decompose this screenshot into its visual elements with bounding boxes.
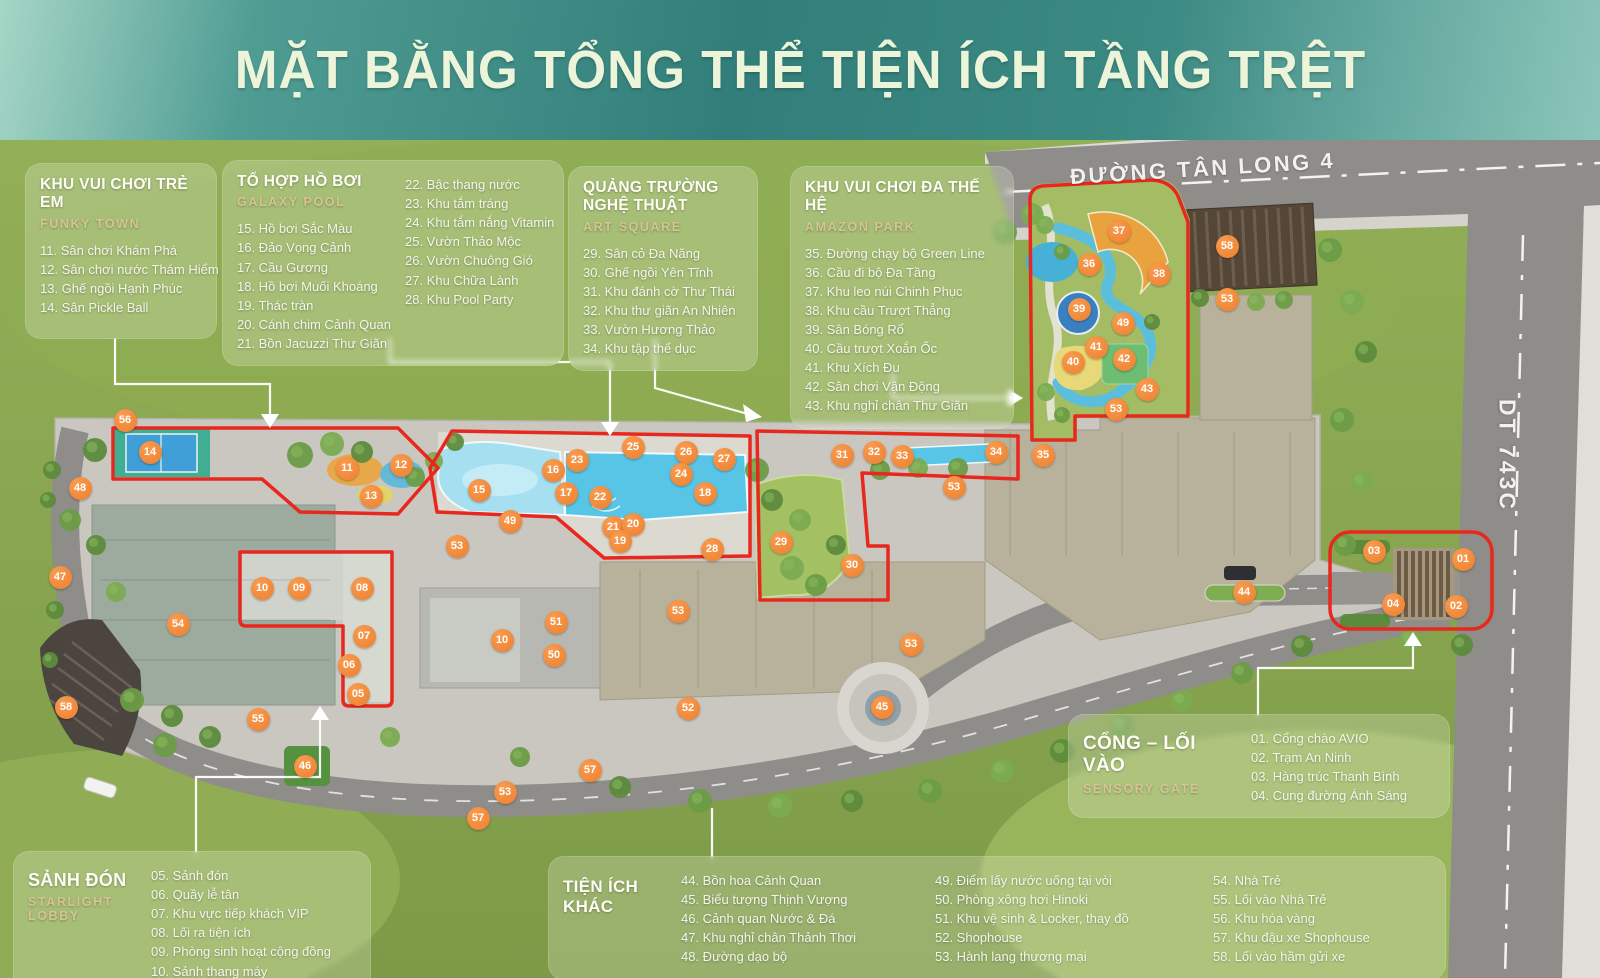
map-marker-28: 28 [701, 538, 724, 561]
legend-amazon-park: KHU VUI CHƠI ĐA THẾ HỆ AMAZON PARK 35. Đ… [790, 166, 1014, 429]
legend-item: 03. Hàng trúc Thanh Bình [1251, 767, 1407, 786]
map-marker-09: 09 [288, 577, 311, 600]
legend-item: 17. Cầu Gương [237, 258, 389, 277]
legend-item: 19. Thác tràn [237, 296, 389, 315]
legend-item: 25. Vườn Thảo Mộc [405, 232, 554, 251]
legend-item: 55. Lối vào Nhà Trẻ [1213, 890, 1403, 909]
map-marker-42: 42 [1113, 348, 1136, 371]
map-marker-50: 50 [543, 644, 566, 667]
legend-item: 15. Hồ bơi Sắc Màu [237, 219, 389, 238]
map-marker-19: 19 [609, 530, 632, 553]
map-marker-13: 13 [360, 485, 383, 508]
legend-art-square: QUẢNG TRƯỜNG NGHỆ THUẬT ART SQUARE 29. S… [568, 166, 758, 371]
legend-item: 35. Đường chạy bộ Green Line [805, 244, 999, 263]
map-marker-36: 36 [1078, 253, 1101, 276]
map-marker-48: 48 [69, 477, 92, 500]
map-marker-12: 12 [390, 454, 413, 477]
legend-item: 41. Khu Xích Đu [805, 358, 999, 377]
map-marker-58: 58 [55, 696, 78, 719]
map-marker-38: 38 [1148, 263, 1171, 286]
legend-item: 58. Lối vào hầm gửi xe [1213, 947, 1403, 966]
map-marker-55: 55 [247, 708, 270, 731]
map-marker-11: 11 [336, 457, 359, 480]
map-marker-53: 53 [667, 600, 690, 623]
legend-item: 26. Vườn Chuông Gió [405, 251, 554, 270]
legend-sensory-gate: CỔNG – LỐI VÀO SENSORY GATE 01. Cổng chà… [1068, 714, 1450, 818]
legend-subtitle: ART SQUARE [583, 220, 743, 234]
legend-item: 20. Cánh chim Cảnh Quan [237, 315, 389, 334]
page-title: MẶT BẰNG TỔNG THỂ TIỆN ÍCH TẦNG TRỆT [234, 39, 1365, 101]
legend-item: 23. Khu tắm tráng [405, 194, 554, 213]
legend-title: TỔ HỢP HỒ BƠI [237, 173, 389, 191]
legend-item: 56. Khu hóa vàng [1213, 909, 1403, 928]
map-marker-14: 14 [139, 441, 162, 464]
legend-item: 33. Vườn Hương Thảo [583, 320, 743, 339]
legend-item: 29. Sân cỏ Đa Năng [583, 244, 743, 263]
map-marker-53: 53 [446, 535, 469, 558]
legend-item: 05. Sảnh đón [151, 866, 331, 885]
legend-item: 10. Sảnh thang máy [151, 962, 331, 978]
legend-item: 49. Điểm lấy nước uống tại vòi [935, 871, 1187, 890]
map-marker-32: 32 [863, 441, 886, 464]
legend-item: 01. Cổng chào AVIO [1251, 729, 1407, 748]
legend-list: 05. Sảnh đón06. Quầy lễ tân07. Khu vực t… [151, 866, 331, 978]
legend-item: 06. Quầy lễ tân [151, 885, 331, 904]
legend-list: 29. Sân cỏ Đa Năng30. Ghế ngồi Yên Tĩnh3… [583, 244, 743, 359]
legend-item: 13. Ghế ngồi Hạnh Phúc [40, 279, 202, 298]
map-marker-15: 15 [468, 479, 491, 502]
map-marker-23: 23 [566, 449, 589, 472]
map-marker-16: 16 [542, 459, 565, 482]
legend-list: 01. Cổng chào AVIO02. Trạm An Ninh03. Hà… [1251, 729, 1407, 805]
map-marker-58: 58 [1216, 235, 1239, 258]
map-marker-10: 10 [491, 629, 514, 652]
legend-item: 27. Khu Chữa Lành [405, 271, 554, 290]
legend-item: 34. Khu tập thể dục [583, 339, 743, 358]
map-marker-53: 53 [1105, 398, 1128, 421]
map-marker-57: 57 [467, 807, 490, 830]
map-marker-57: 57 [579, 759, 602, 782]
map-marker-47: 47 [49, 566, 72, 589]
page-header: MẶT BẰNG TỔNG THỂ TIỆN ÍCH TẦNG TRỆT [0, 0, 1600, 140]
map-marker-41: 41 [1085, 336, 1108, 359]
legend-title: TIỆN ÍCH KHÁC [563, 877, 655, 917]
legend-list: 49. Điểm lấy nước uống tại vòi50. Phòng … [935, 871, 1187, 967]
map-marker-49: 49 [1112, 312, 1135, 335]
legend-subtitle: FUNKY TOWN [40, 217, 202, 231]
map-marker-25: 25 [622, 436, 645, 459]
map-marker-37: 37 [1108, 220, 1131, 243]
legend-item: 14. Sân Pickle Ball [40, 298, 202, 317]
legend-item: 36. Cầu đi bộ Đa Tầng [805, 263, 999, 282]
map-marker-24: 24 [670, 463, 693, 486]
marker-layer: 5614484758545510090807060546111213154916… [0, 0, 1600, 978]
legend-item: 42. Sân chơi Vận Động [805, 377, 999, 396]
map-marker-26: 26 [675, 441, 698, 464]
legend-item: 09. Phòng sinh hoạt cộng đồng [151, 942, 331, 961]
legend-galaxy-pool: TỔ HỢP HỒ BƠI GALAXY POOL 15. Hồ bơi Sắc… [222, 160, 564, 366]
legend-item: 52. Shophouse [935, 928, 1187, 947]
legend-subtitle: STARLIGHT LOBBY [28, 895, 133, 923]
legend-item: 46. Cảnh quan Nước & Đá [681, 909, 909, 928]
legend-item: 11. Sân chơi Khám Phá [40, 241, 202, 260]
legend-item: 24. Khu tắm nắng Vitamin [405, 213, 554, 232]
map-marker-29: 29 [770, 531, 793, 554]
legend-title: QUẢNG TRƯỜNG NGHỆ THUẬT [583, 179, 743, 216]
legend-item: 16. Đảo Vọng Cảnh [237, 238, 389, 257]
map-marker-52: 52 [677, 697, 700, 720]
legend-item: 44. Bồn hoa Cảnh Quan [681, 871, 909, 890]
legend-item: 31. Khu đánh cờ Thư Thái [583, 282, 743, 301]
map-marker-10: 10 [251, 577, 274, 600]
map-marker-53: 53 [1216, 288, 1239, 311]
map-marker-03: 03 [1363, 540, 1386, 563]
legend-item: 53. Hành lang thương mại [935, 947, 1187, 966]
map-marker-22: 22 [589, 486, 612, 509]
legend-item: 37. Khu leo núi Chinh Phục [805, 282, 999, 301]
legend-item: 12. Sân chơi nước Thám Hiểm [40, 260, 202, 279]
legend-item: 21. Bồn Jacuzzi Thư Giãn [237, 334, 389, 353]
legend-funky-town: KHU VUI CHƠI TRẺ EM FUNKY TOWN 11. Sân c… [25, 163, 217, 339]
map-marker-49: 49 [499, 510, 522, 533]
map-marker-04: 04 [1382, 593, 1405, 616]
map-marker-35: 35 [1032, 444, 1055, 467]
legend-item: 07. Khu vực tiếp khách VIP [151, 904, 331, 923]
map-marker-01: 01 [1452, 548, 1475, 571]
legend-item: 40. Cầu trượt Xoắn Ốc [805, 339, 999, 358]
map-marker-56: 56 [114, 409, 137, 432]
legend-item: 18. Hồ bơi Muối Khoáng [237, 277, 389, 296]
map-marker-34: 34 [985, 441, 1008, 464]
legend-item: 38. Khu cầu Trượt Thẳng [805, 301, 999, 320]
legend-item: 45. Biểu tượng Thịnh Vượng [681, 890, 909, 909]
map-marker-54: 54 [167, 613, 190, 636]
site-plan-page: ĐƯỜNG TÂN LONG 4 DT 743C 561448475854551… [0, 0, 1600, 978]
legend-list: 15. Hồ bơi Sắc Màu16. Đảo Vọng Cảnh17. C… [237, 219, 389, 353]
legend-item: 50. Phòng xông hơi Hinoki [935, 890, 1187, 909]
map-marker-53: 53 [900, 633, 923, 656]
legend-item: 02. Trạm An Ninh [1251, 748, 1407, 767]
map-marker-53: 53 [494, 781, 517, 804]
legend-item: 51. Khu vệ sinh & Locker, thay đồ [935, 909, 1187, 928]
legend-item: 32. Khu thư giãn An Nhiên [583, 301, 743, 320]
legend-title: KHU VUI CHƠI TRẺ EM [40, 176, 202, 213]
legend-item: 04. Cung đường Ánh Sáng [1251, 786, 1407, 805]
map-marker-06: 06 [338, 654, 361, 677]
map-marker-43: 43 [1136, 378, 1159, 401]
map-marker-53: 53 [943, 476, 966, 499]
legend-other-amenities: TIỆN ÍCH KHÁC 44. Bồn hoa Cảnh Quan45. B… [548, 856, 1446, 978]
legend-list: 11. Sân chơi Khám Phá12. Sân chơi nước T… [40, 241, 202, 317]
legend-item: 48. Đường dạo bộ [681, 947, 909, 966]
legend-item: 08. Lối ra tiện ích [151, 923, 331, 942]
legend-item: 57. Khu đậu xe Shophouse [1213, 928, 1403, 947]
map-marker-45: 45 [871, 696, 894, 719]
map-marker-51: 51 [545, 611, 568, 634]
map-marker-33: 33 [891, 445, 914, 468]
legend-title: KHU VUI CHƠI ĐA THẾ HỆ [805, 179, 999, 216]
legend-item: 39. Sân Bóng Rổ [805, 320, 999, 339]
map-marker-31: 31 [831, 444, 854, 467]
map-marker-46: 46 [294, 755, 317, 778]
legend-list: 22. Bậc thang nước23. Khu tắm tráng24. K… [405, 175, 554, 309]
map-marker-17: 17 [555, 482, 578, 505]
map-marker-07: 07 [353, 625, 376, 648]
legend-title: SẢNH ĐÓN [28, 870, 133, 891]
map-marker-30: 30 [841, 554, 864, 577]
legend-item: 43. Khu nghỉ chân Thư Giãn [805, 396, 999, 415]
map-marker-27: 27 [713, 448, 736, 471]
map-marker-39: 39 [1068, 298, 1091, 321]
legend-item: 22. Bậc thang nước [405, 175, 554, 194]
map-marker-18: 18 [694, 482, 717, 505]
map-marker-02: 02 [1445, 595, 1468, 618]
legend-list: 35. Đường chạy bộ Green Line36. Cầu đi b… [805, 244, 999, 416]
legend-subtitle: AMAZON PARK [805, 220, 999, 234]
legend-list: 54. Nhà Trẻ55. Lối vào Nhà Trẻ56. Khu hó… [1213, 871, 1403, 967]
legend-starlight-lobby: SẢNH ĐÓN STARLIGHT LOBBY 05. Sảnh đón06.… [13, 851, 371, 978]
map-marker-44: 44 [1233, 581, 1256, 604]
legend-item: 47. Khu nghỉ chân Thảnh Thơi [681, 928, 909, 947]
legend-subtitle: SENSORY GATE [1083, 782, 1233, 796]
legend-item: 28. Khu Pool Party [405, 290, 554, 309]
legend-subtitle: GALAXY POOL [237, 195, 389, 209]
legend-item: 30. Ghế ngồi Yên Tĩnh [583, 263, 743, 282]
map-marker-05: 05 [347, 683, 370, 706]
legend-title: CỔNG – LỐI VÀO [1083, 733, 1233, 778]
map-marker-40: 40 [1062, 351, 1085, 374]
map-marker-08: 08 [351, 577, 374, 600]
legend-item: 54. Nhà Trẻ [1213, 871, 1403, 890]
legend-list: 44. Bồn hoa Cảnh Quan45. Biểu tượng Thịn… [681, 871, 909, 967]
